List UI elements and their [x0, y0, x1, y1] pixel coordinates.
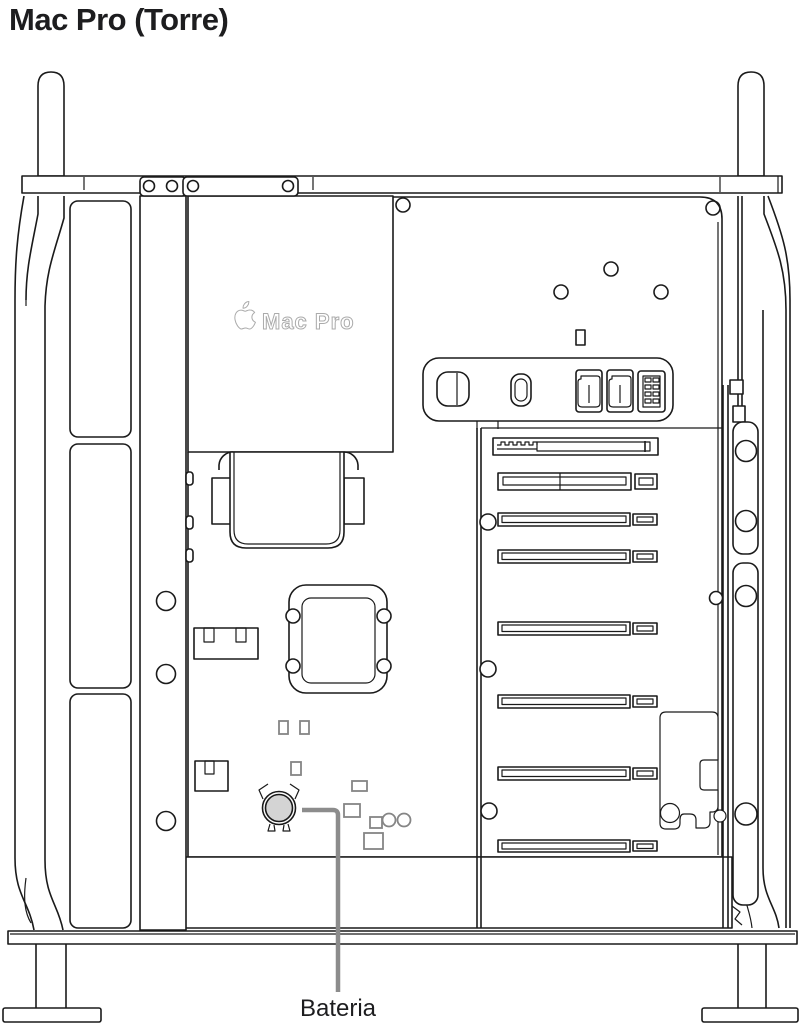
right-handle	[738, 72, 764, 176]
battery-label: Bateria	[300, 995, 377, 1022]
corner-bracket	[660, 712, 726, 829]
latch-pin	[710, 592, 723, 605]
psu-device-label: Mac Pro	[262, 309, 355, 334]
battery	[259, 784, 299, 831]
rail-top-bracket	[140, 177, 186, 196]
board-connector-2	[195, 761, 228, 791]
psu-connector	[212, 452, 364, 548]
left-handle	[38, 72, 64, 176]
bottom-bar	[8, 931, 797, 944]
chassis-base	[185, 857, 742, 928]
left-foot	[3, 944, 101, 1022]
storage-bays	[70, 201, 131, 928]
cpu-heatsink-mount	[286, 585, 391, 693]
right-foot	[702, 944, 798, 1022]
board-connector-1	[194, 628, 258, 659]
pcie-slot-cage	[477, 428, 722, 928]
left-leg	[15, 196, 64, 930]
right-latch-rail	[710, 380, 759, 928]
top-bar	[22, 176, 782, 193]
left-rail	[140, 196, 193, 930]
small-components	[279, 721, 411, 849]
mac-pro-side-illustration: Mac Pro	[0, 0, 803, 1032]
io-panel	[423, 358, 673, 429]
pcie-slots	[493, 438, 658, 852]
